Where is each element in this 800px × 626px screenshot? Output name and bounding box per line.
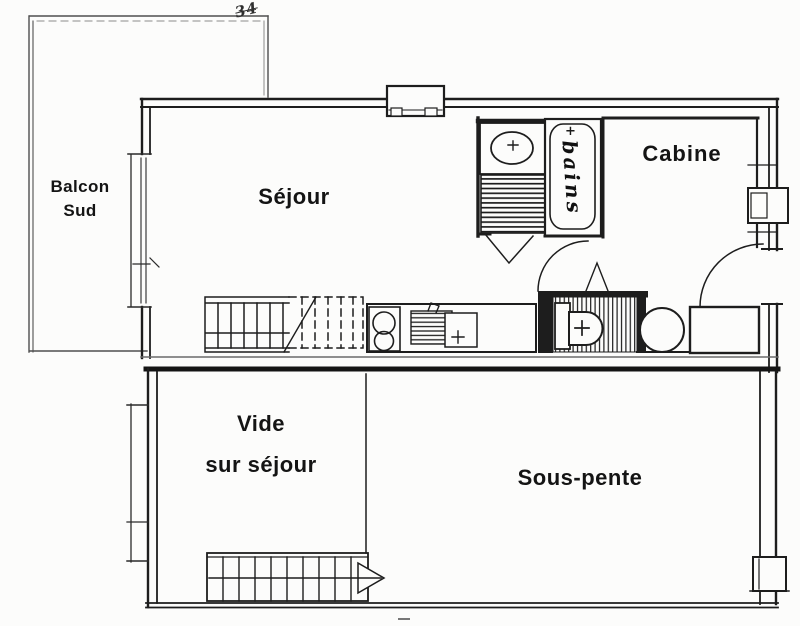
lower-level-walls — [146, 369, 778, 608]
balcony-label-line1: Balcon — [22, 175, 138, 199]
floor-plan: Balcon Sud Séjour Cabine + bains Vide su… — [0, 0, 800, 626]
living-room-label: Séjour — [204, 184, 384, 210]
floor-plan-linework — [0, 0, 800, 626]
staircase-upper — [205, 297, 363, 352]
balcony-label: Balcon Sud — [22, 175, 138, 223]
closet — [690, 307, 759, 353]
staircase-lower — [207, 553, 384, 601]
door-wc-swing — [538, 241, 610, 296]
top-wall-window — [387, 86, 444, 116]
water-heater-icon — [640, 308, 684, 352]
under-eaves-label: Sous-pente — [490, 465, 670, 491]
lower-right-window — [750, 557, 789, 591]
cabin-label: Cabine — [592, 141, 772, 167]
balcony-label-line2: Sud — [22, 199, 138, 223]
kitchen-counter — [367, 303, 536, 352]
door-cabin-swing — [700, 244, 763, 307]
void-label-line1: Vide — [171, 411, 351, 437]
void-label-line2: sur séjour — [171, 452, 351, 478]
bath-plus-marker: + — [565, 124, 576, 139]
washbasin-icon — [491, 132, 533, 164]
floor-division-walls — [141, 357, 778, 369]
lower-left-window — [127, 404, 148, 562]
cabin-window-radiator — [748, 188, 788, 223]
door-bathroom-swing — [485, 234, 533, 263]
bath-hatched-area — [481, 175, 545, 233]
